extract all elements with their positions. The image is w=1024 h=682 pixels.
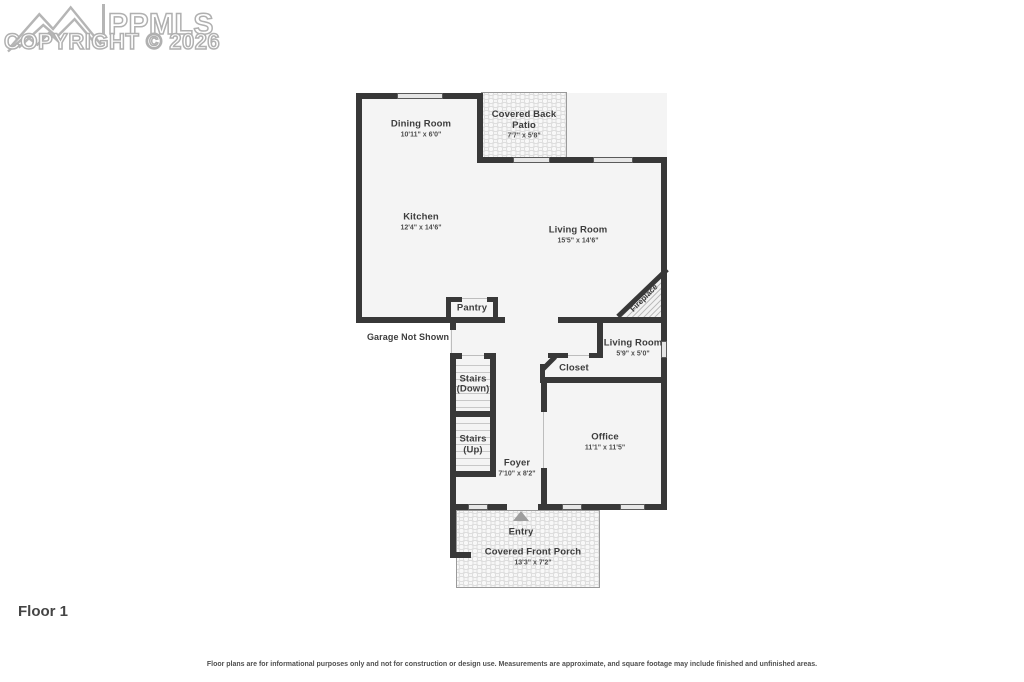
stairs-up-dir: (Up) [463,446,482,457]
wall [645,504,667,510]
window [397,93,443,99]
small-living-room-dims: 5'9" x 5'0" [616,351,649,358]
closet-label: Closet [559,364,589,375]
wall [582,504,620,510]
small-living-room-label: Living Room [604,339,663,350]
stairs-down-dir: (Down) [457,385,490,396]
wall [488,504,507,510]
window [562,504,582,510]
garage-not-shown-label: Garage Not Shown [367,332,449,342]
living-room-dims: 15'5" x 14'6" [557,238,598,245]
disclaimer-text: Floor plans are for informational purpos… [0,661,1024,668]
wall [450,322,456,330]
foyer-dims: 7'10" x 8'2" [498,471,535,478]
wall [450,510,456,558]
entry-arrow-icon [513,511,529,521]
floor-plan-page: Dining Room 10'11" x 6'0" Covered Back P… [0,0,1024,682]
window [593,157,633,163]
wall [661,157,667,510]
kitchen-label: Kitchen [403,213,439,224]
living-room-label: Living Room [549,226,608,237]
wall [477,93,483,163]
wall [450,552,471,558]
wall [356,317,451,323]
kitchen-dims: 12'4" x 14'6" [400,225,441,232]
door-line [462,298,487,299]
ppmls-watermark: PPMLS COPYRIGHT © 2026 [2,0,262,70]
back-patio-dims: 7'7" x 5'8" [507,133,540,140]
wall [597,323,603,355]
office-label: Office [591,433,619,444]
wall [477,157,667,163]
wall [538,504,562,510]
pantry-label: Pantry [457,304,487,315]
wall [540,377,667,383]
window [620,504,645,510]
office-dims: 11'1" x 11'5" [585,445,625,452]
door-line [543,412,544,468]
wall [541,383,547,412]
patio-door [513,157,550,163]
wall [558,317,667,323]
garage-door-line [451,330,452,353]
door-line [568,355,589,356]
entry-label: Entry [509,528,534,539]
copyright-text: COPYRIGHT © 2026 [4,29,220,55]
stair-line [462,355,484,356]
front-porch-dims: 13'3" x 7'2" [514,560,551,567]
dining-room-dims: 10'11" x 6'0" [401,132,442,139]
front-porch-label: Covered Front Porch [485,548,581,559]
back-patio-label: Covered Back Patio [491,110,557,132]
foyer-label: Foyer [504,459,530,470]
wall [450,471,496,477]
wall [356,93,362,323]
floor-number-label: Floor 1 [18,603,68,620]
window [468,504,488,510]
dining-room-label: Dining Room [391,120,451,131]
